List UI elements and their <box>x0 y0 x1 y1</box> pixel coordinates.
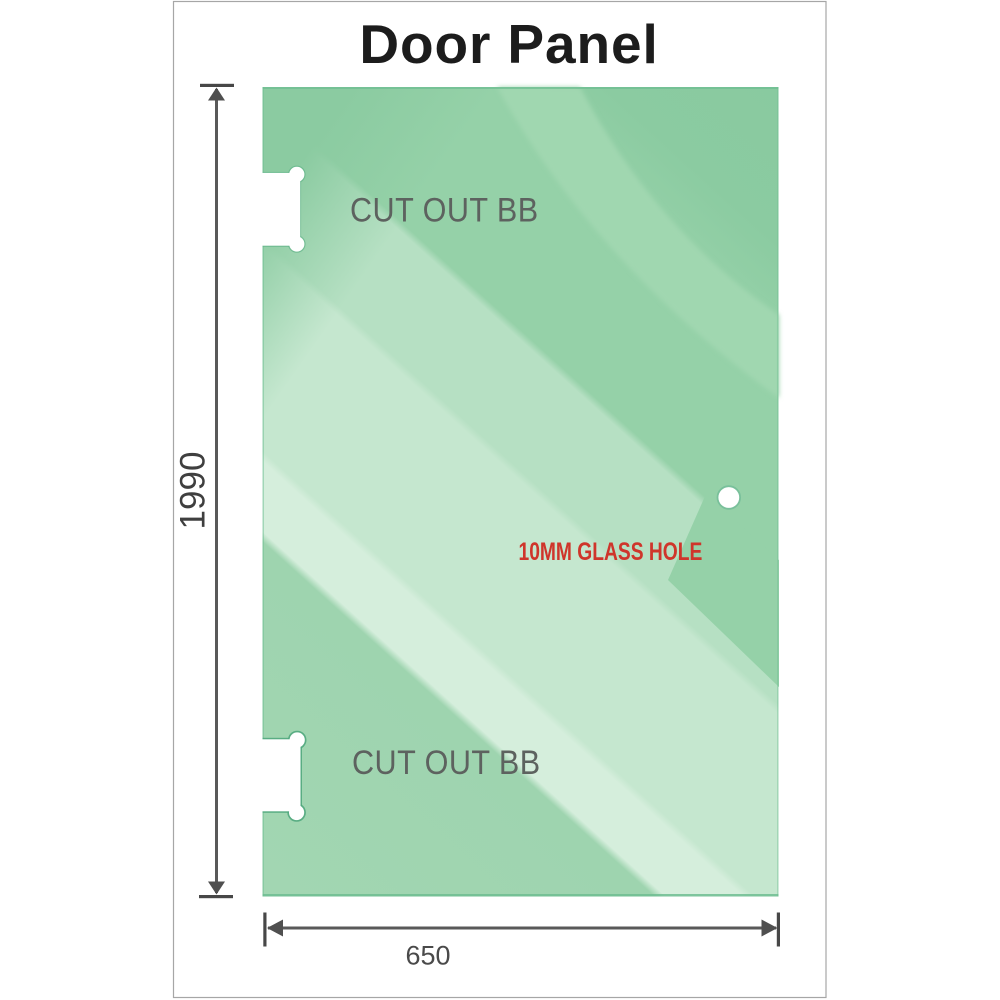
svg-text:CUT OUT BB: CUT OUT BB <box>350 191 539 229</box>
svg-text:Door Panel: Door Panel <box>359 13 658 75</box>
svg-text:CUT OUT BB: CUT OUT BB <box>352 744 541 782</box>
svg-text:10MM GLASS HOLE: 10MM GLASS HOLE <box>519 538 703 566</box>
svg-text:650: 650 <box>405 941 450 971</box>
svg-text:1990: 1990 <box>174 452 213 530</box>
